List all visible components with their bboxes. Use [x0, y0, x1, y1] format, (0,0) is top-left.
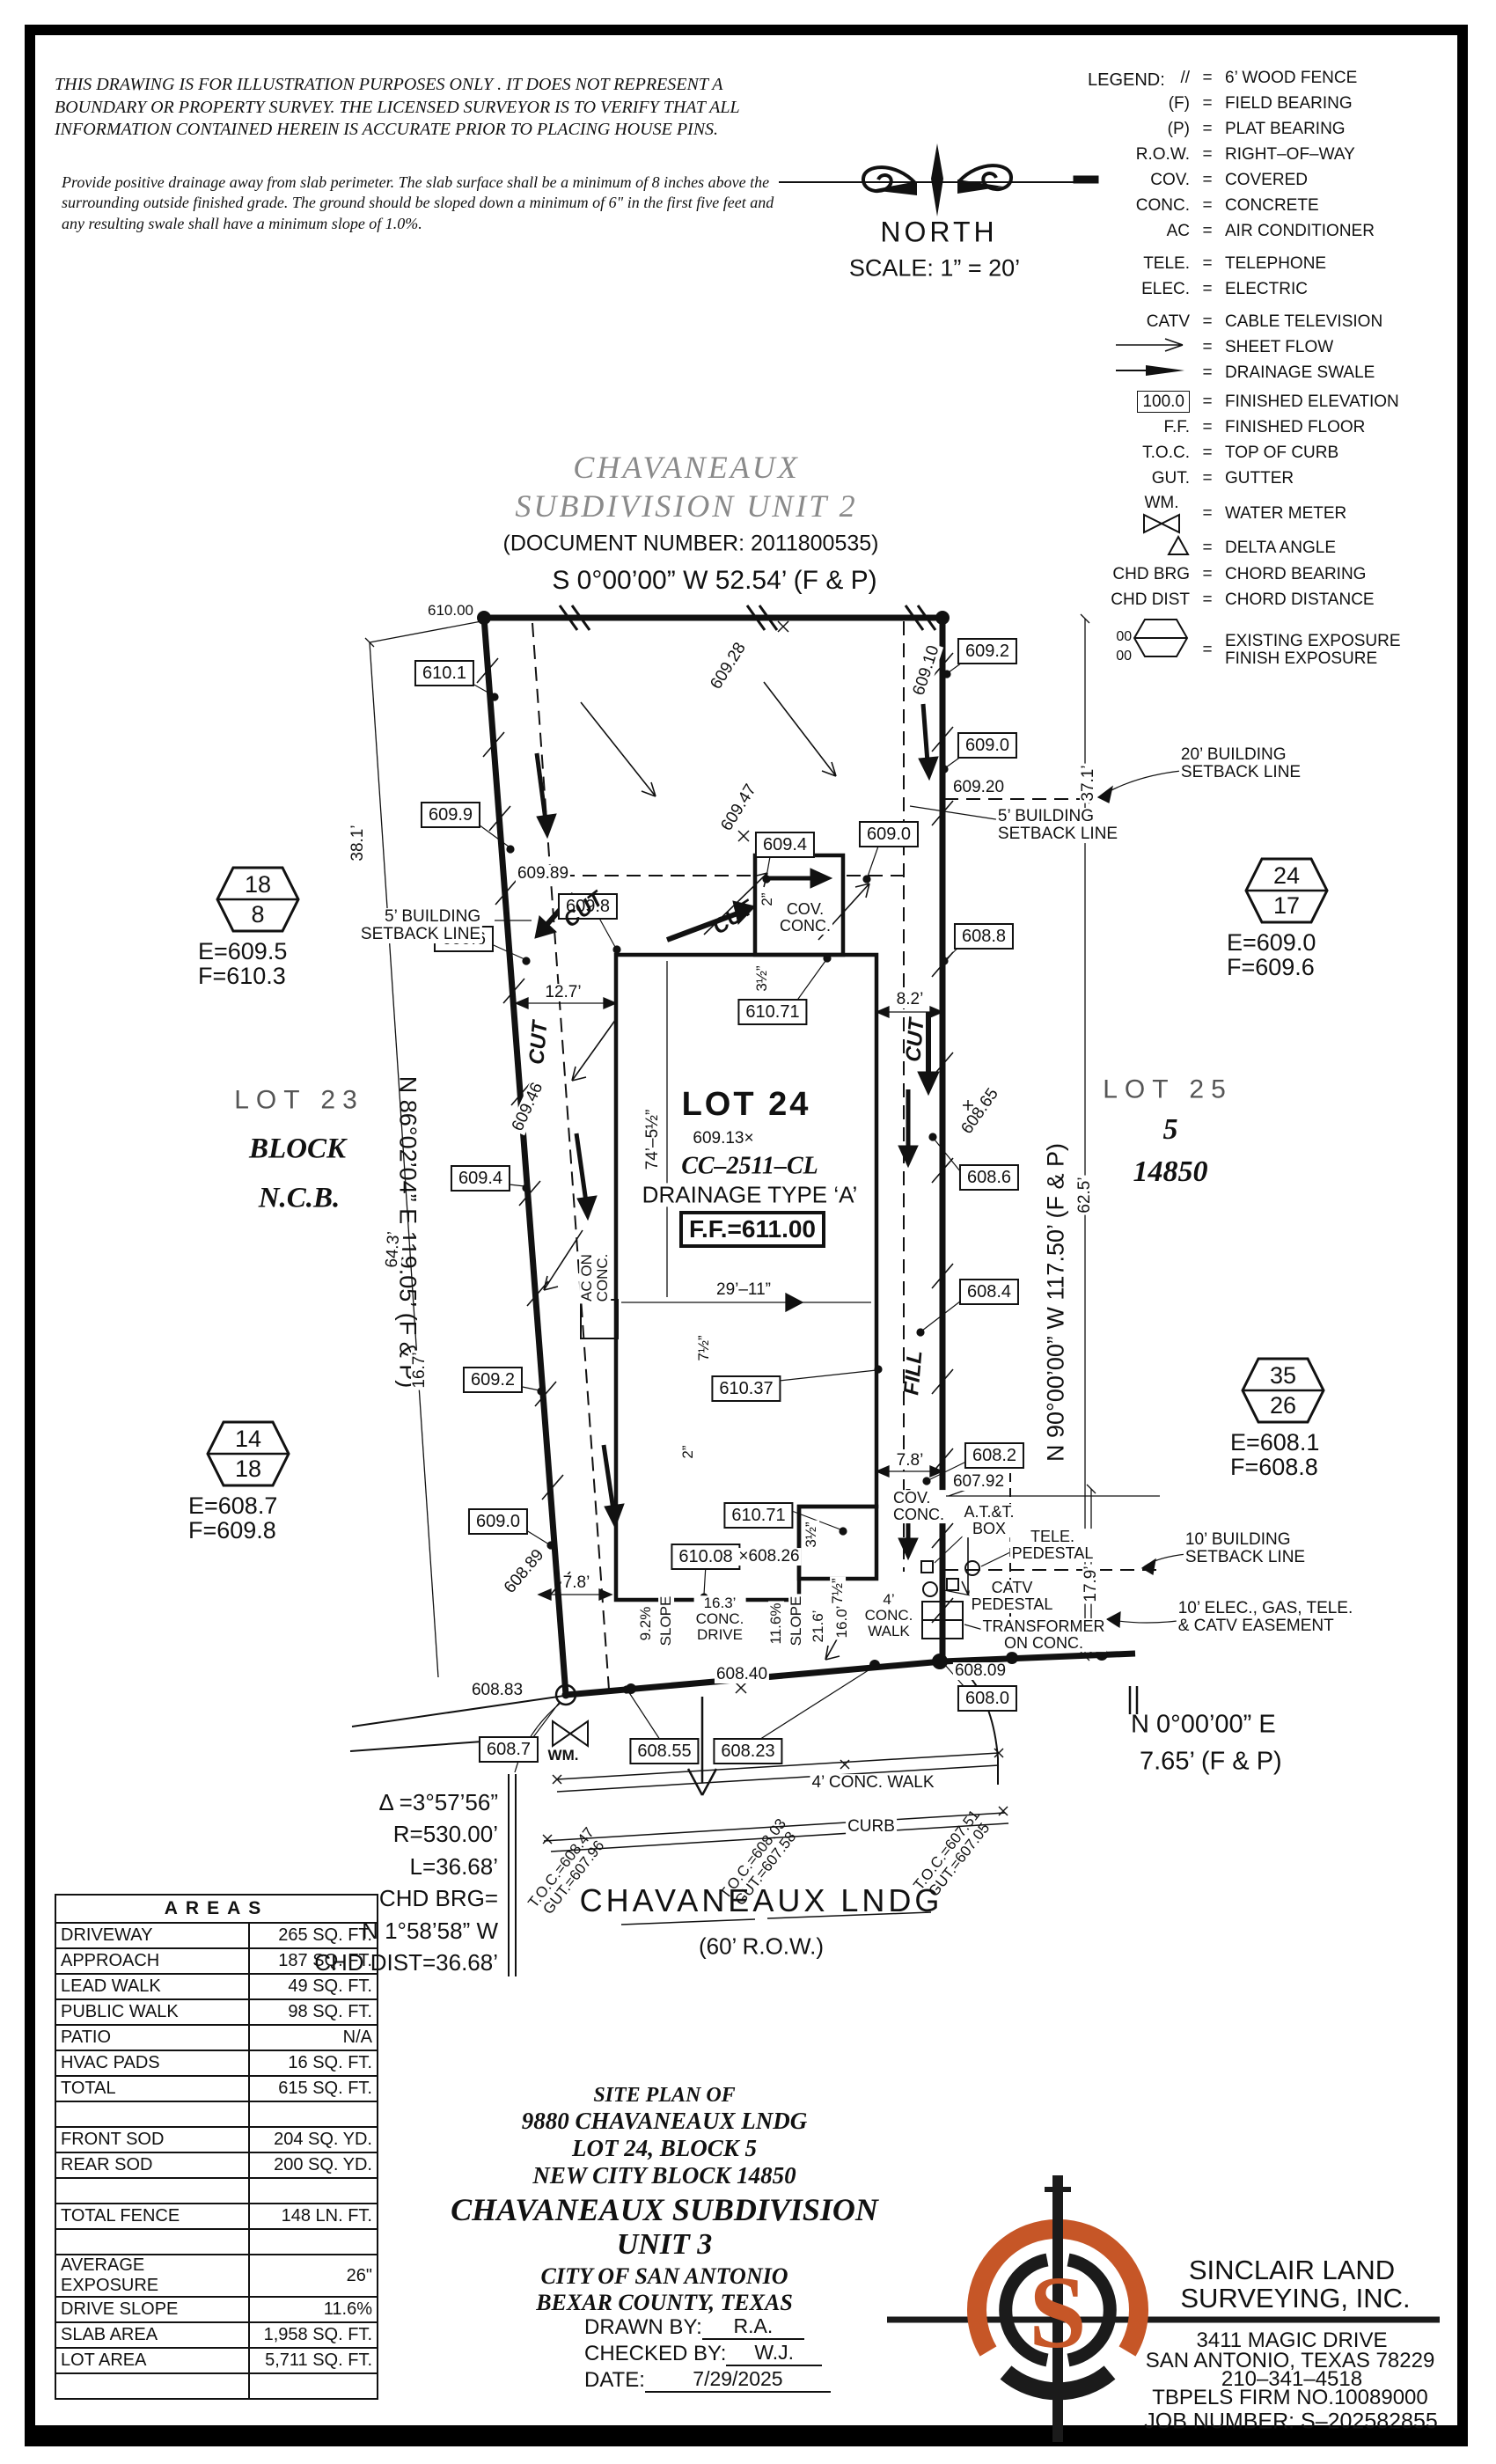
hex-top: 14: [204, 1426, 292, 1453]
conc-walk-upper-label: 4’ CONC. WALK: [863, 1592, 915, 1639]
legend-desc: TELEPHONE: [1225, 255, 1326, 273]
elev-609-0-right: 609.0: [957, 732, 1017, 759]
exposure-marker-14-18: 14 18 E=608.7 F=609.8: [204, 1417, 292, 1495]
hex-top: 24: [1243, 862, 1331, 890]
drainage-swale-icon: [1086, 363, 1190, 384]
conc-walk-street-label: 4’ CONC. WALK: [810, 1774, 935, 1792]
titleblock-address: 9880 CHAVANEAUX LNDG: [440, 2108, 889, 2135]
legend-desc: RIGHT–OF–WAY: [1225, 146, 1355, 164]
street-row: (60’ R.O.W.): [699, 1933, 824, 1961]
row-value: 49 SQ. FT.: [249, 1974, 378, 1999]
elev-609-2-right: 609.2: [957, 638, 1017, 664]
dim-2in-porch: 2”: [759, 891, 775, 907]
legend-desc: ELECTRIC: [1225, 281, 1308, 298]
table-row: LEAD WALK49 SQ. FT.: [55, 1974, 378, 1999]
scale-label: SCALE: 1” = 20’: [849, 255, 1020, 282]
setback-5ft-left-label: 5’ BUILDING SETBACK LINE: [359, 908, 482, 943]
table-row: LOT AREA5,711 SQ. FT.: [55, 2348, 378, 2373]
date-label: DATE:: [584, 2368, 645, 2393]
row-value: 11.6%: [249, 2297, 378, 2322]
row-value: [249, 2101, 378, 2127]
elev-608-4: 608.4: [959, 1279, 1019, 1305]
elev-608-8: 608.8: [954, 923, 1014, 950]
elev-608-55: 608.55: [629, 1738, 699, 1764]
legend-desc: 6’ WOOD FENCE: [1225, 70, 1357, 87]
legend-desc: EXISTING EXPOSURE FINISH EXPOSURE: [1225, 633, 1401, 668]
date-row: DATE: 7/29/2025: [584, 2367, 831, 2393]
legend-sym: TELE.: [1086, 254, 1190, 274]
legend-desc: DRAINAGE SWALE: [1225, 364, 1375, 382]
hex-finish: F=609.8: [188, 1517, 276, 1544]
dim-2in-patio: 3½”: [803, 1520, 819, 1549]
row-label: [55, 2229, 249, 2255]
dim-7-8-left: 7.8’: [561, 1574, 592, 1592]
setback-20ft-label: 20’ BUILDING SETBACK LINE: [1179, 746, 1302, 781]
table-row: DRIVEWAY265 SQ. FT.: [55, 1923, 378, 1948]
checked-by-value: W.J.: [726, 2341, 822, 2366]
row-value: 204 SQ. YD.: [249, 2127, 378, 2152]
company-name-1: SINCLAIR LAND: [1189, 2255, 1395, 2286]
fill-label: FILL: [900, 1348, 927, 1398]
drive-slope-word-1: SLOPE: [658, 1595, 674, 1648]
elev-609-89: 609.89: [516, 865, 570, 883]
lot24-label: LOT 24: [680, 1088, 813, 1123]
dim-16-0: 16.0’: [834, 1604, 850, 1640]
lot25-block: 5: [1162, 1114, 1180, 1146]
elev-609-2-left: 609.2: [463, 1367, 523, 1393]
legend-sym: T.O.C.: [1086, 444, 1190, 463]
table-row: [55, 2101, 378, 2127]
easement-label: 10’ ELEC., GAS, TELE. & CATV EASEMENT: [1177, 1600, 1355, 1635]
legend-desc: CHORD BEARING: [1225, 566, 1366, 583]
dim-29-11: 29’–11”: [715, 1281, 773, 1299]
dim-21-6: 21.6’: [810, 1609, 826, 1645]
elev-609-4-top: 609.4: [755, 832, 815, 858]
lot24-drainage-type: DRAINAGE TYPE ‘A’: [641, 1183, 860, 1206]
table-row: HVAC PADS16 SQ. FT.: [55, 2050, 378, 2076]
dim-62-5: 62.5’: [1076, 1175, 1094, 1214]
wm-label: WM.: [546, 1748, 581, 1764]
legend-sym: GUT.: [1086, 469, 1190, 488]
row-label: PATIO: [55, 2025, 249, 2050]
drive-slope-116: 11.6%: [768, 1602, 784, 1646]
table-row: FRONT SOD204 SQ. YD.: [55, 2127, 378, 2152]
hex-bottom: 18: [204, 1456, 292, 1483]
lot25-label: LOT 25: [1101, 1075, 1235, 1104]
dim-37-1: 37.1’: [1080, 763, 1097, 803]
att-box-label: A.T.&T. BOX: [962, 1504, 1016, 1537]
elev-608-09: 608.09: [953, 1662, 1008, 1680]
curve-radius: R=530.00’: [304, 1818, 498, 1850]
row-value: 1,958 SQ. FT.: [249, 2322, 378, 2348]
row-value: 187 SQ. FT.: [249, 1948, 378, 1974]
row-value: N/A: [249, 2025, 378, 2050]
titleblock-subdivision: CHAVANEAUX SUBDIVISION: [440, 2191, 889, 2228]
hex-existing: E=608.1: [1230, 1429, 1319, 1456]
company-firm-number: TBPELS FIRM NO.10089000: [1152, 2386, 1427, 2410]
legend: LEGEND: //=6’ WOOD FENCE (F)=FIELD BEARI…: [1086, 65, 1464, 685]
hex-top: 35: [1239, 1362, 1327, 1390]
legend-title: LEGEND:: [1088, 70, 1165, 91]
legend-sym: (F): [1086, 94, 1190, 114]
north-arrow-icon: [779, 143, 1098, 216]
titleblock-lot: LOT 24, BLOCK 5: [440, 2135, 889, 2162]
water-meter-legend-icon: WM.: [1086, 494, 1190, 534]
elev-609-0-left: 609.0: [468, 1508, 528, 1535]
subdivision-name-2: SUBDIVISION UNIT 2: [378, 488, 994, 524]
exposure-marker-18-8: 18 8 E=609.5 F=610.3: [214, 862, 302, 941]
hex-finish: F=609.6: [1227, 954, 1315, 981]
row-label: TOTAL FENCE: [55, 2204, 249, 2229]
checked-by-row: CHECKED BY: W.J.: [584, 2341, 822, 2366]
row-label: SLAB AREA: [55, 2322, 249, 2348]
bearing-north: S 0°00’00” W 52.54’ (F & P): [552, 566, 876, 596]
row-value: 200 SQ. YD.: [249, 2152, 378, 2178]
lot23-label: LOT 23: [232, 1086, 366, 1114]
ac-on-conc-label: AC ON CONC.: [579, 1252, 611, 1304]
row-value: [249, 2178, 378, 2204]
transformer-label: TRANSFORMER ON CONC.: [981, 1618, 1107, 1652]
cov-conc-top-label: COV. CONC.: [778, 901, 832, 935]
legend-desc: COVERED: [1225, 172, 1308, 189]
legend-hex-bottom: 00: [1116, 649, 1132, 664]
company-name-2: SURVEYING, INC.: [1180, 2283, 1410, 2314]
lot24-spot-elevation: 609.13×: [691, 1130, 755, 1148]
legend-desc: TOP OF CURB: [1225, 444, 1338, 462]
legend-desc: CHORD DISTANCE: [1225, 591, 1375, 609]
table-row: REAR SOD200 SQ. YD.: [55, 2152, 378, 2178]
drawn-by-row: DRAWN BY: R.A.: [584, 2314, 804, 2340]
legend-desc: PLAT BEARING: [1225, 121, 1346, 138]
hex-existing: E=609.0: [1227, 929, 1316, 957]
elev-610-37: 610.37: [711, 1375, 781, 1402]
exposure-marker-35-26: 35 26 E=608.1 F=608.8: [1239, 1353, 1327, 1432]
logo-letter: S: [1029, 2253, 1087, 2372]
lot23-block: BLOCK: [247, 1134, 348, 1165]
exposure-marker-24-17: 24 17 E=609.0 F=609.6: [1243, 854, 1331, 932]
lot24-plan-code: CC–2511–CL: [679, 1153, 820, 1178]
legend-sym: COV.: [1086, 171, 1190, 190]
row-label: REAR SOD: [55, 2152, 249, 2178]
elev-610-00: 610.00: [426, 603, 475, 619]
elev-607-92: 607.92: [951, 1473, 1006, 1491]
curb-label: CURB: [846, 1818, 897, 1836]
hex-finish: F=610.3: [198, 963, 286, 990]
legend-desc: DELTA ANGLE: [1225, 539, 1336, 557]
table-row: [55, 2178, 378, 2204]
legend-desc: FINISHED FLOOR: [1225, 419, 1365, 436]
row-value: 98 SQ. FT.: [249, 1999, 378, 2025]
legend-desc: AIR CONDITIONER: [1225, 223, 1375, 240]
dim-7half-b: 7½”: [830, 1576, 846, 1605]
table-row: PATION/A: [55, 2025, 378, 2050]
row-value: 148 LN. FT.: [249, 2204, 378, 2229]
elev-610-1: 610.1: [414, 660, 474, 686]
row-value: 615 SQ. FT.: [249, 2076, 378, 2101]
table-row: APPROACH187 SQ. FT.: [55, 1948, 378, 1974]
elev-608-6: 608.6: [959, 1164, 1019, 1191]
drawn-by-value: R.A.: [702, 2314, 804, 2340]
street-lines: [509, 1662, 1137, 1976]
legend-desc: FINISHED ELEVATION: [1225, 393, 1399, 411]
elev-610-71-upper: 610.71: [737, 999, 807, 1025]
row-label: PUBLIC WALK: [55, 1999, 249, 2025]
dim-7-8-right: 7.8’: [895, 1452, 926, 1470]
hex-bottom: 26: [1239, 1392, 1327, 1419]
row-value: 16 SQ. FT.: [249, 2050, 378, 2076]
legend-desc: FIELD BEARING: [1225, 95, 1353, 113]
title-block: SITE PLAN OF 9880 CHAVANEAUX LNDG LOT 24…: [440, 2084, 889, 2316]
areas-table: AREAS DRIVEWAY265 SQ. FT. APPROACH187 SQ…: [55, 1894, 378, 2400]
legend-sym: R.O.W.: [1086, 145, 1190, 165]
sheet-flow-icon: [1086, 337, 1190, 358]
elev-609-0-top: 609.0: [859, 821, 919, 847]
cut-label-3: CUT: [525, 1018, 552, 1067]
bearing-south-1: N 0°00’00” E: [1131, 1711, 1276, 1740]
hex-existing: E=608.7: [188, 1492, 277, 1520]
titleblock-city: CITY OF SAN ANTONIO: [440, 2263, 889, 2290]
elev-608-0: 608.0: [957, 1685, 1017, 1712]
legend-desc: GUTTER: [1225, 470, 1294, 488]
conc-drive-label: 16.3’ CONC. DRIVE: [694, 1595, 746, 1643]
areas-title: AREAS: [55, 1895, 378, 1923]
table-row: DRIVE SLOPE11.6%: [55, 2297, 378, 2322]
dim-17-9: 17.9’: [1082, 1564, 1100, 1603]
legend-sym: WM.: [1144, 494, 1178, 512]
elev-608-23: 608.23: [713, 1738, 782, 1764]
document-number: (DOCUMENT NUMBER: 2011800535): [503, 532, 879, 557]
legend-hex-top: 00: [1116, 629, 1132, 644]
row-value: 26": [249, 2255, 378, 2297]
row-label: LOT AREA: [55, 2348, 249, 2373]
table-row: TOTAL FENCE148 LN. FT.: [55, 2204, 378, 2229]
legend-sym: CHD DIST: [1086, 590, 1190, 610]
cut-label-4: CUT: [902, 1016, 928, 1064]
titleblock-county: BEXAR COUNTY, TEXAS: [440, 2290, 889, 2316]
legend-sym: F.F.: [1086, 418, 1190, 437]
job-number: JOB NUMBER: S–202582855: [1144, 2409, 1438, 2435]
row-label: [55, 2373, 249, 2399]
row-label: DRIVE SLOPE: [55, 2297, 249, 2322]
legend-desc: CONCRETE: [1225, 197, 1319, 215]
dim-16-7: 16.7’: [411, 1350, 429, 1390]
hex-existing: E=609.5: [198, 938, 287, 965]
drive-slope-92: 9.2%: [638, 1605, 654, 1643]
finished-elevation-icon: 100.0: [1137, 391, 1190, 413]
site-plan-sheet: THIS DRAWING IS FOR ILLUSTRATION PURPOSE…: [0, 0, 1496, 2464]
finished-floor-elevation: F.F.=611.00: [679, 1211, 825, 1248]
drive-slope-word-2: SLOPE: [788, 1595, 804, 1648]
street-name: CHAVANEAUX LNDG: [580, 1882, 943, 1919]
drawn-by-label: DRAWN BY:: [584, 2315, 702, 2340]
exposure-hex-icon: 0000: [1086, 616, 1190, 685]
legend-desc: SHEET FLOW: [1225, 339, 1333, 356]
elev-608-7: 608.7: [479, 1736, 539, 1763]
dim-74-5half: 74’–5½”: [644, 1108, 662, 1172]
row-value: [249, 2229, 378, 2255]
row-value: 5,711 SQ. FT.: [249, 2348, 378, 2373]
table-row: [55, 2373, 378, 2399]
legend-sym: CHD BRG: [1086, 565, 1190, 584]
legend-sym: AC: [1086, 222, 1190, 241]
tele-pedestal-label: TELE. PEDESTAL: [1010, 1529, 1096, 1562]
dim-38-1: 38.1’: [349, 823, 367, 862]
legend-sym: CONC.: [1086, 196, 1190, 216]
date-value: 7/29/2025: [645, 2367, 831, 2393]
lot23-ncb: N.C.B.: [257, 1184, 342, 1214]
dim-64-3: 64.3’: [383, 1229, 403, 1270]
titleblock-site: SITE PLAN OF: [440, 2084, 889, 2108]
dim-2in-house: 2”: [680, 1443, 696, 1460]
elev-609-20: 609.20: [951, 779, 1006, 796]
row-label: APPROACH: [55, 1948, 249, 1974]
table-row: TOTAL615 SQ. FT.: [55, 2076, 378, 2101]
catv-pedestal-label: CATV PEDESTAL: [970, 1580, 1055, 1613]
row-label: DRIVEWAY: [55, 1923, 249, 1948]
elev-609-4-left: 609.4: [451, 1165, 510, 1192]
dim-7half-a: 7½”: [696, 1333, 712, 1362]
dim-3half-porch: 3½”: [754, 964, 770, 993]
cov-conc-bottom-label: COV. CONC.: [891, 1490, 946, 1523]
row-label: [55, 2101, 249, 2127]
row-label: [55, 2178, 249, 2204]
legend-desc: CABLE TELEVISION: [1225, 313, 1382, 331]
row-label: HVAC PADS: [55, 2050, 249, 2076]
hex-bottom: 17: [1243, 892, 1331, 920]
checked-by-label: CHECKED BY:: [584, 2342, 726, 2366]
legend-sym: CATV: [1086, 312, 1190, 332]
table-row: PUBLIC WALK98 SQ. FT.: [55, 1999, 378, 2025]
water-meter-icon: [553, 1721, 588, 1746]
row-label: FRONT SOD: [55, 2127, 249, 2152]
subdivision-name-1: CHAVANEAUX: [378, 449, 994, 486]
table-row: [55, 2229, 378, 2255]
lot25-ncb: 14850: [1132, 1156, 1210, 1188]
row-label: LEAD WALK: [55, 1974, 249, 1999]
row-label: AVERAGE EXPOSURE: [55, 2255, 249, 2297]
elev-610-71-lower: 610.71: [723, 1502, 793, 1529]
row-value: [249, 2373, 378, 2399]
titleblock-ncb: NEW CITY BLOCK 14850: [440, 2162, 889, 2189]
titleblock-unit: UNIT 3: [440, 2228, 889, 2262]
delta-angle-icon: [1086, 535, 1190, 561]
table-row: AVERAGE EXPOSURE26": [55, 2255, 378, 2297]
dim-8-2: 8.2’: [895, 991, 926, 1008]
dim-12-7: 12.7’: [543, 984, 583, 1001]
north-label: NORTH: [880, 216, 997, 249]
legend-desc: WATER METER: [1225, 505, 1346, 523]
row-label: TOTAL: [55, 2076, 249, 2101]
table-row: SLAB AREA1,958 SQ. FT.: [55, 2322, 378, 2348]
curve-length: L=36.68’: [304, 1851, 498, 1882]
setback-5ft-right-label: 5’ BUILDING SETBACK LINE: [996, 808, 1119, 843]
elev-610-08: 610.08: [671, 1544, 740, 1570]
row-value: 265 SQ. FT.: [249, 1923, 378, 1948]
elev-608-83: 608.83: [470, 1682, 524, 1699]
hex-bottom: 8: [214, 901, 302, 928]
setback-10ft-label: 10’ BUILDING SETBACK LINE: [1184, 1531, 1307, 1566]
elev-608-40: 608.40: [715, 1666, 769, 1683]
hex-finish: F=608.8: [1230, 1454, 1318, 1481]
elev-609-9: 609.9: [421, 802, 480, 828]
legend-sym: ELEC.: [1086, 280, 1190, 299]
legend-sym: (P): [1086, 120, 1190, 139]
curve-delta: Δ =3°57’56”: [304, 1786, 498, 1818]
hex-top: 18: [214, 871, 302, 898]
elev-608-2: 608.2: [964, 1442, 1024, 1469]
elev-608-26: ×608.26: [737, 1548, 801, 1566]
bearing-south-2: 7.65’ (F & P): [1140, 1748, 1282, 1777]
bearing-east: N 90°00’00” W 117.50’ (F & P): [1043, 1143, 1070, 1462]
